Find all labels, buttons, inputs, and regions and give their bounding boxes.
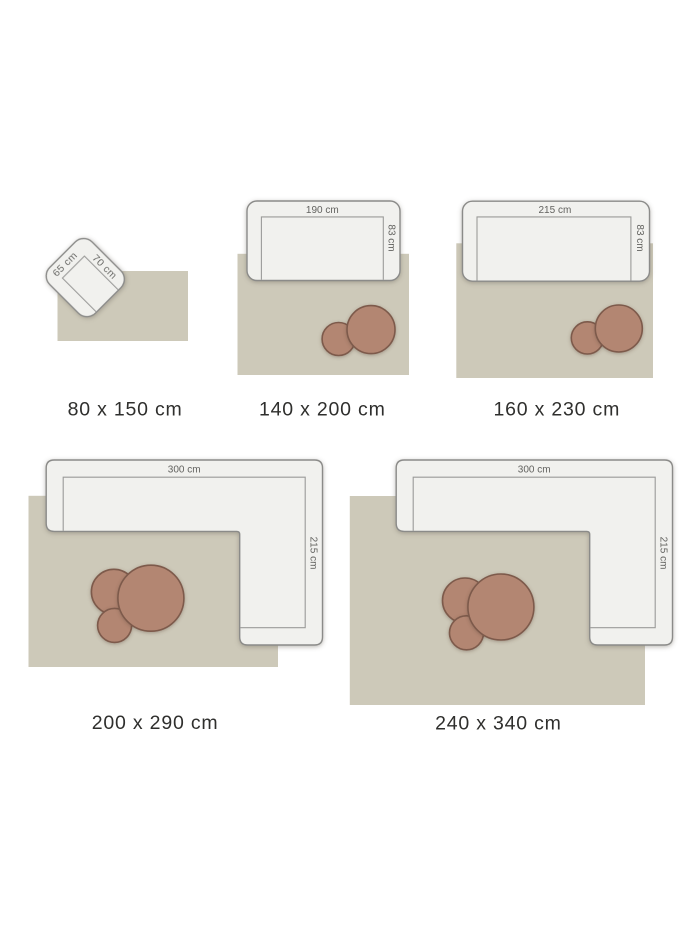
svg-text:80 x 150 cm: 80 x 150 cm bbox=[68, 399, 183, 421]
svg-text:215 cm: 215 cm bbox=[539, 205, 572, 216]
svg-text:160 x 230 cm: 160 x 230 cm bbox=[493, 399, 620, 421]
svg-text:240 x 340 cm: 240 x 340 cm bbox=[435, 713, 562, 735]
svg-text:200 x 290 cm: 200 x 290 cm bbox=[92, 712, 219, 734]
svg-text:83 cm: 83 cm bbox=[385, 224, 396, 251]
svg-text:300 cm: 300 cm bbox=[518, 464, 551, 475]
svg-text:140 x 200 cm: 140 x 200 cm bbox=[259, 399, 386, 421]
svg-text:215 cm: 215 cm bbox=[307, 537, 318, 570]
svg-text:300 cm: 300 cm bbox=[168, 464, 201, 475]
svg-text:215 cm: 215 cm bbox=[657, 537, 668, 570]
svg-text:83 cm: 83 cm bbox=[634, 224, 645, 251]
svg-text:190 cm: 190 cm bbox=[306, 205, 339, 216]
